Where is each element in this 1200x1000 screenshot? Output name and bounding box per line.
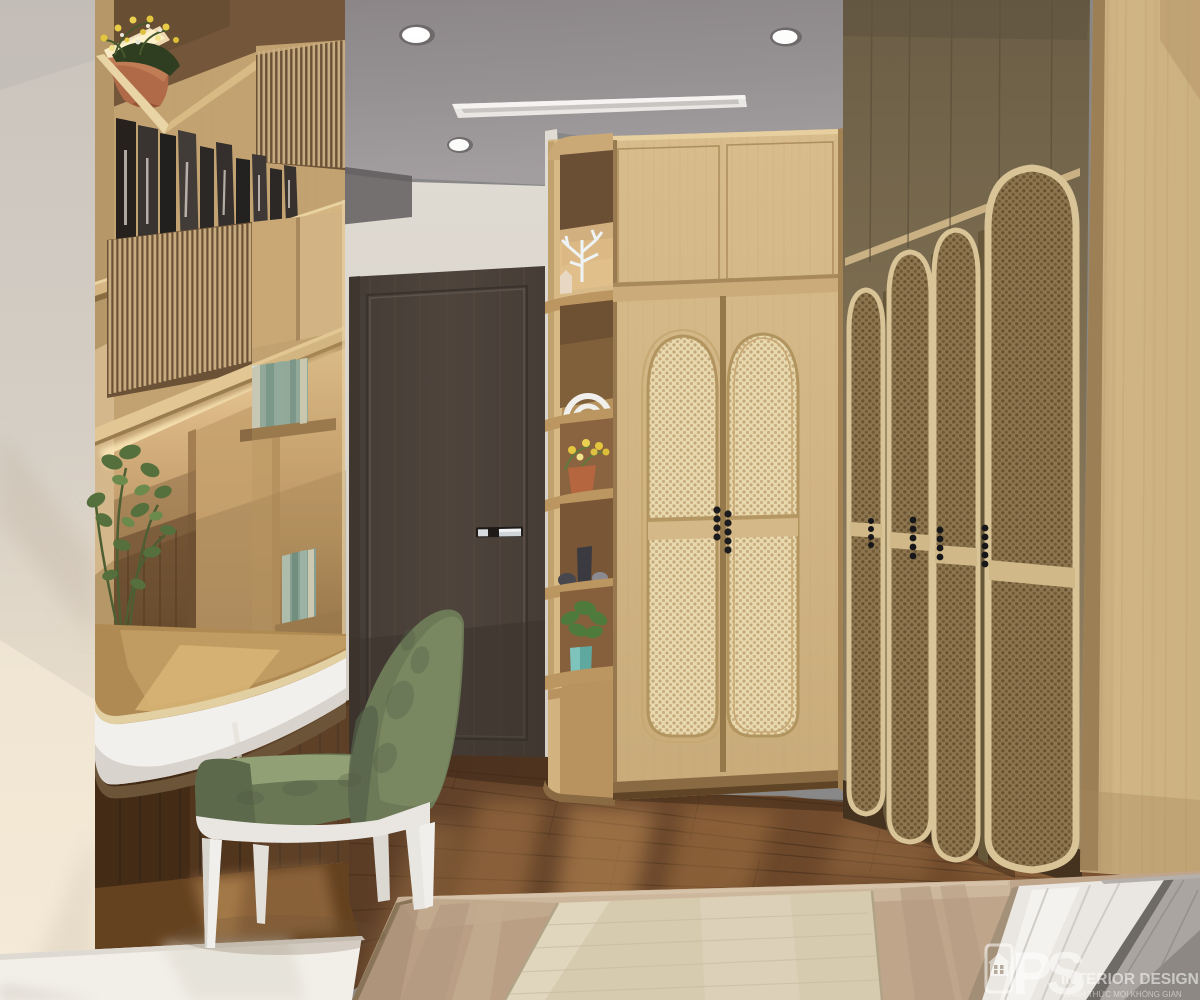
svg-text:ĐÁNH THỨC MỌI KHÔNG GIAN: ĐÁNH THỨC MỌI KHÔNG GIAN (1063, 990, 1182, 999)
svg-text:INTERIOR DESIGN: INTERIOR DESIGN (1061, 971, 1199, 988)
